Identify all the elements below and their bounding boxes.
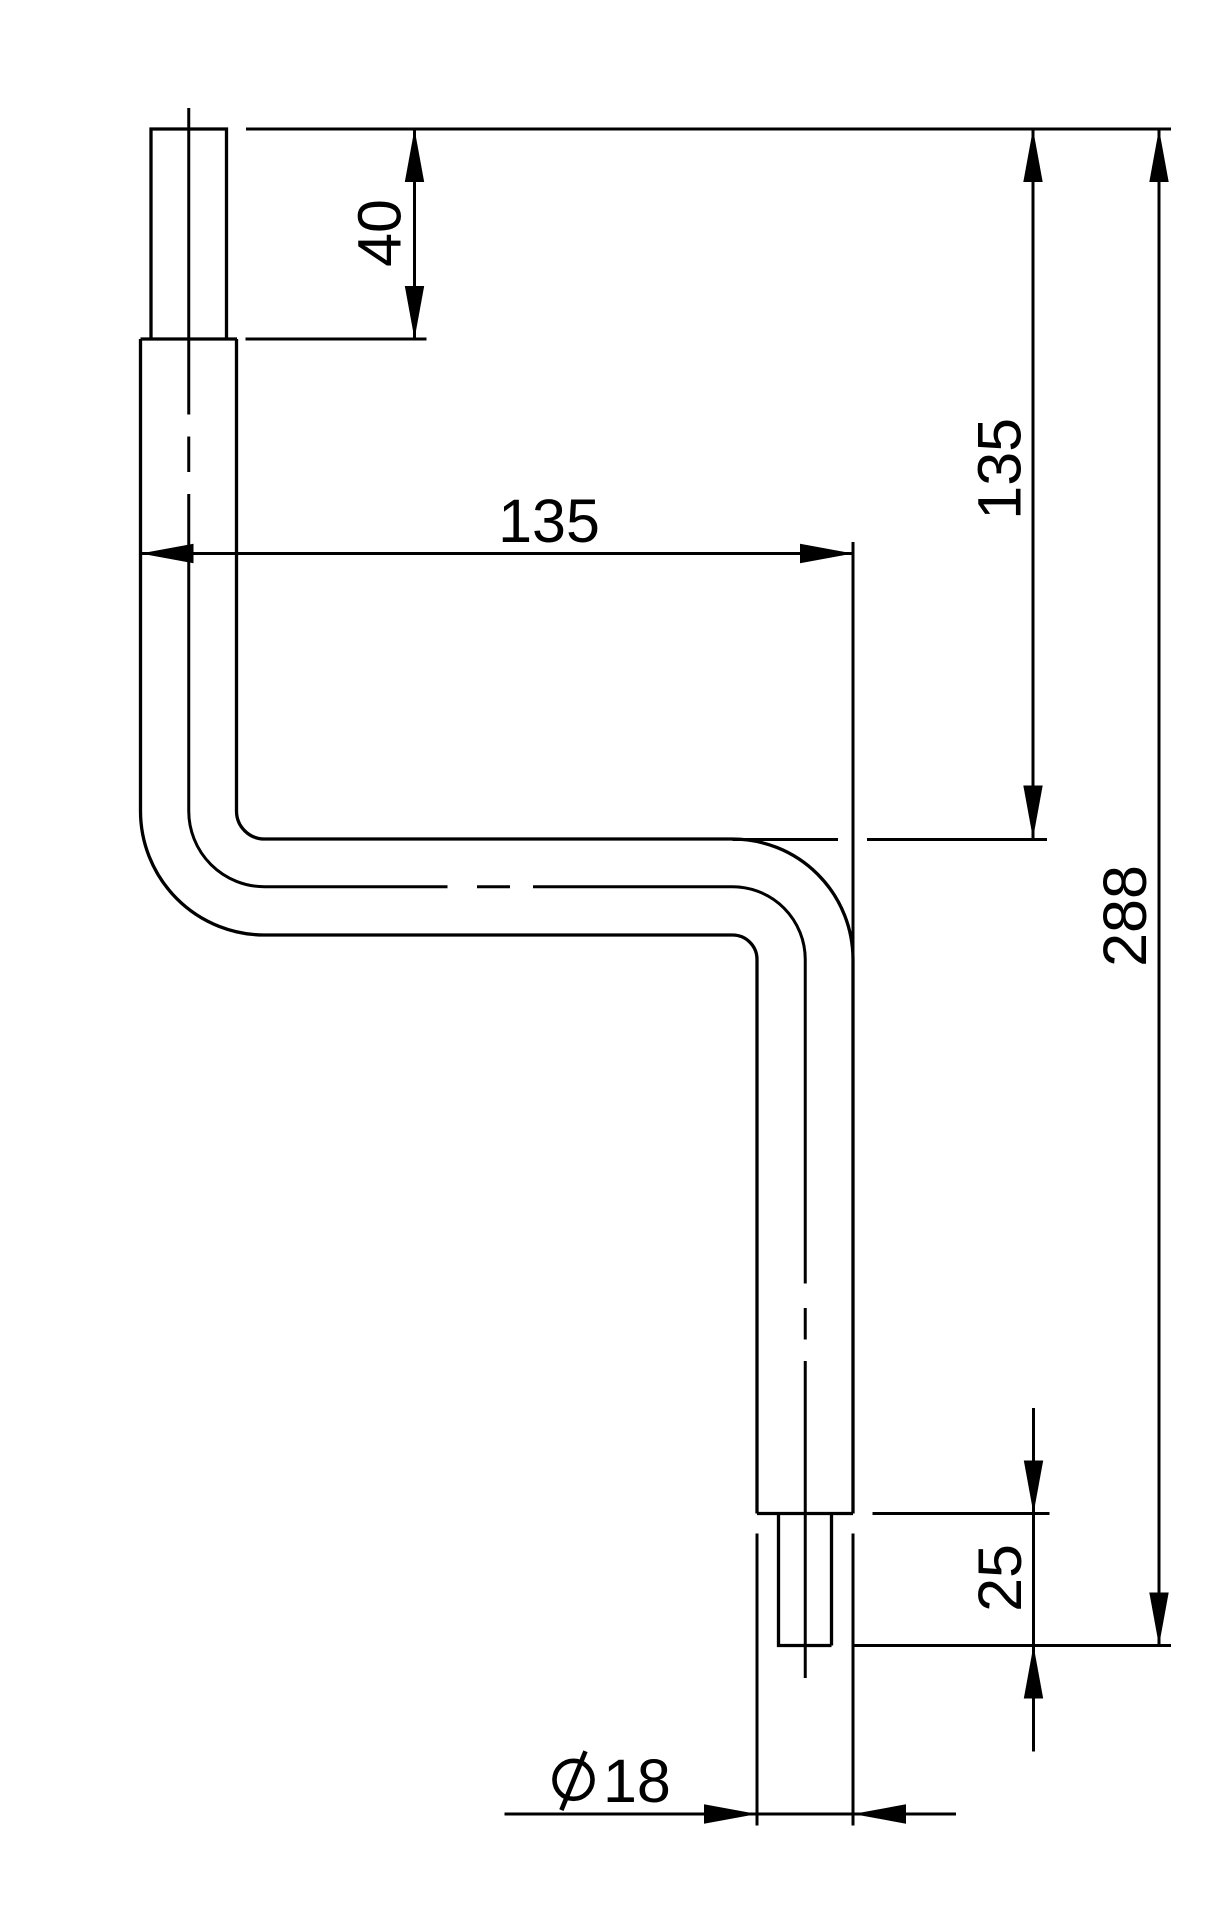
svg-text:135: 135 (966, 418, 1034, 520)
svg-text:18: 18 (603, 1747, 671, 1815)
svg-text:288: 288 (1091, 865, 1159, 967)
svg-text:135: 135 (498, 487, 600, 555)
svg-text:40: 40 (346, 199, 414, 267)
svg-text:25: 25 (966, 1544, 1034, 1612)
